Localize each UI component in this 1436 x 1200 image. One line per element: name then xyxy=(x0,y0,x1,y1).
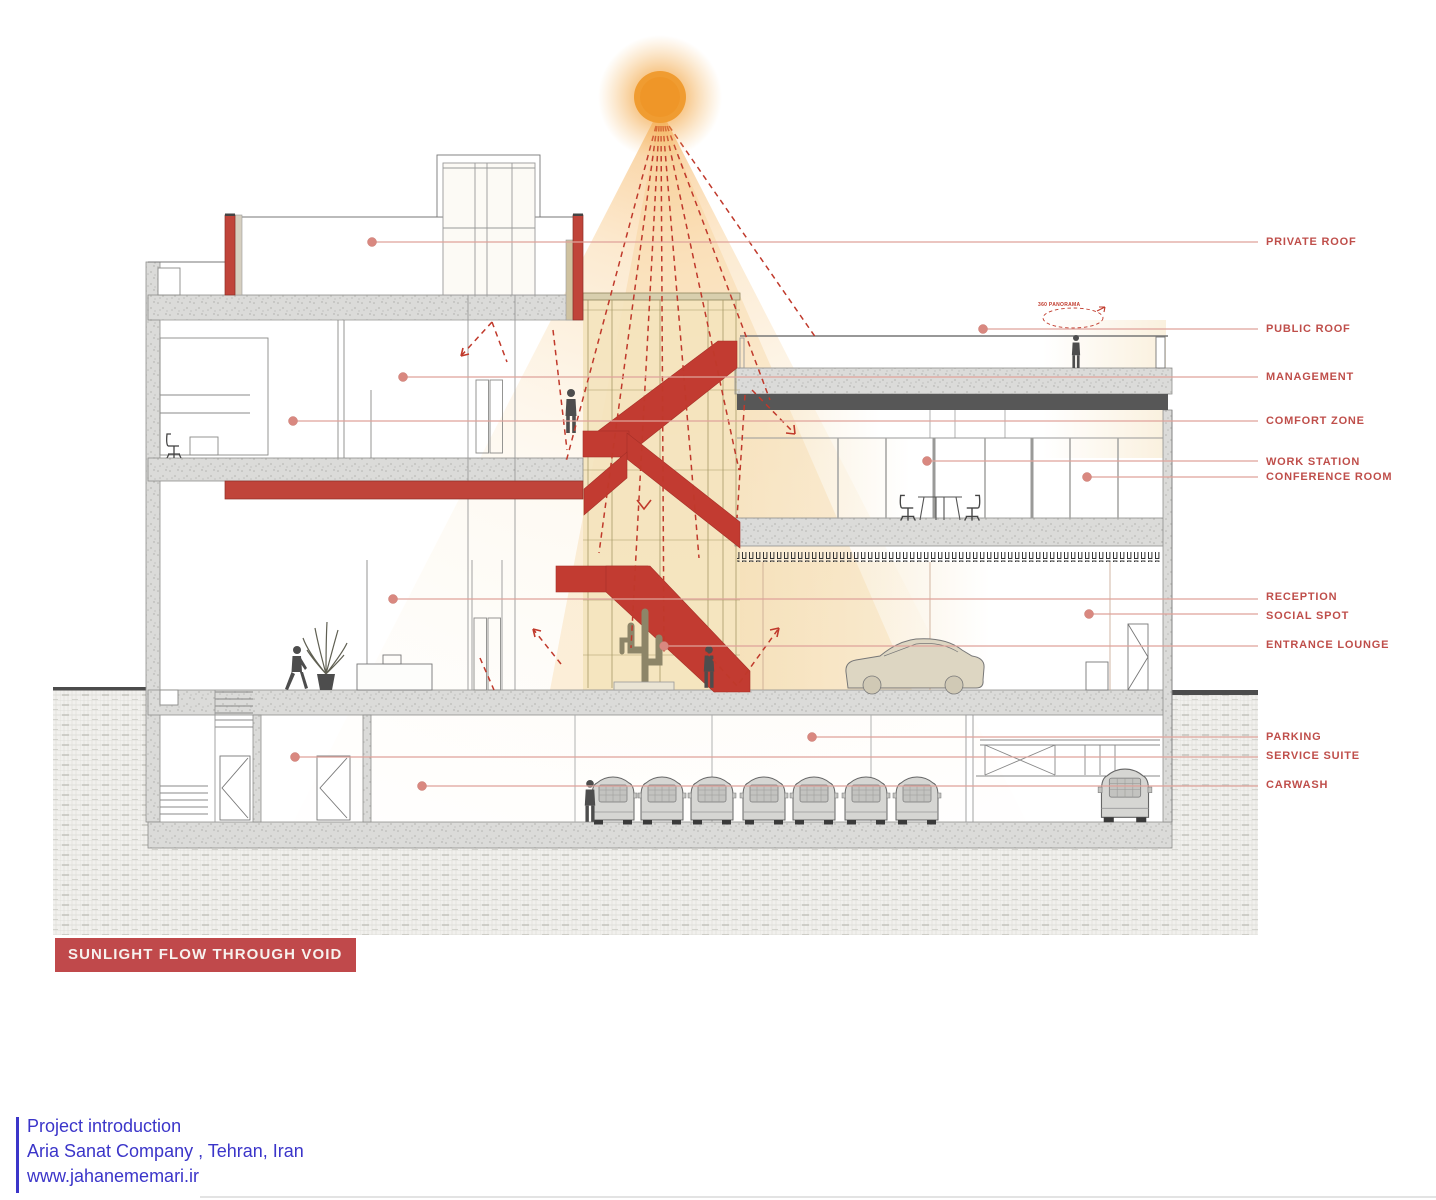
sun xyxy=(598,35,722,159)
section-drawing xyxy=(0,0,1436,1005)
credits-line-project: Project introduction xyxy=(27,1114,304,1139)
callout-label-social-spot: SOCIAL SPOT xyxy=(1266,609,1349,623)
callout-label-carwash: CARWASH xyxy=(1266,778,1328,792)
callout-label-reception: RECEPTION xyxy=(1266,590,1337,604)
callout-label-public-roof: PUBLIC ROOF xyxy=(1266,322,1351,336)
plant xyxy=(303,622,347,690)
callout-label-service-suite: SERVICE SUITE xyxy=(1266,749,1360,763)
callout-label-work-station: WORK STATION xyxy=(1266,455,1360,469)
callout-label-parking: PARKING xyxy=(1266,730,1322,744)
callout-label-private-roof: PRIVATE ROOF xyxy=(1266,235,1356,249)
credits-line-company: Aria Sanat Company , Tehran, Iran xyxy=(27,1139,304,1164)
credits-line-website: www.jahanememari.ir xyxy=(27,1164,304,1189)
page-bottom-edge xyxy=(200,1196,1436,1198)
conference-set xyxy=(900,495,979,520)
diagram-title: SUNLIGHT FLOW THROUGH VOID xyxy=(55,938,356,972)
panorama-caption: 360 PANORAMA xyxy=(1038,302,1080,308)
callout-label-comfort-zone: COMFORT ZONE xyxy=(1266,414,1365,428)
credits-accent-bar xyxy=(16,1117,19,1193)
callout-label-conference-room: CONFERENCE ROOM xyxy=(1266,470,1392,484)
architectural-section-sheet: PRIVATE ROOF PUBLIC ROOF MANAGEMENT COMF… xyxy=(0,0,1436,1200)
callout-label-entrance-lounge: ENTRANCE LOUNGE xyxy=(1266,638,1389,652)
office-chair xyxy=(167,434,181,458)
callout-label-management: MANAGEMENT xyxy=(1266,370,1354,384)
